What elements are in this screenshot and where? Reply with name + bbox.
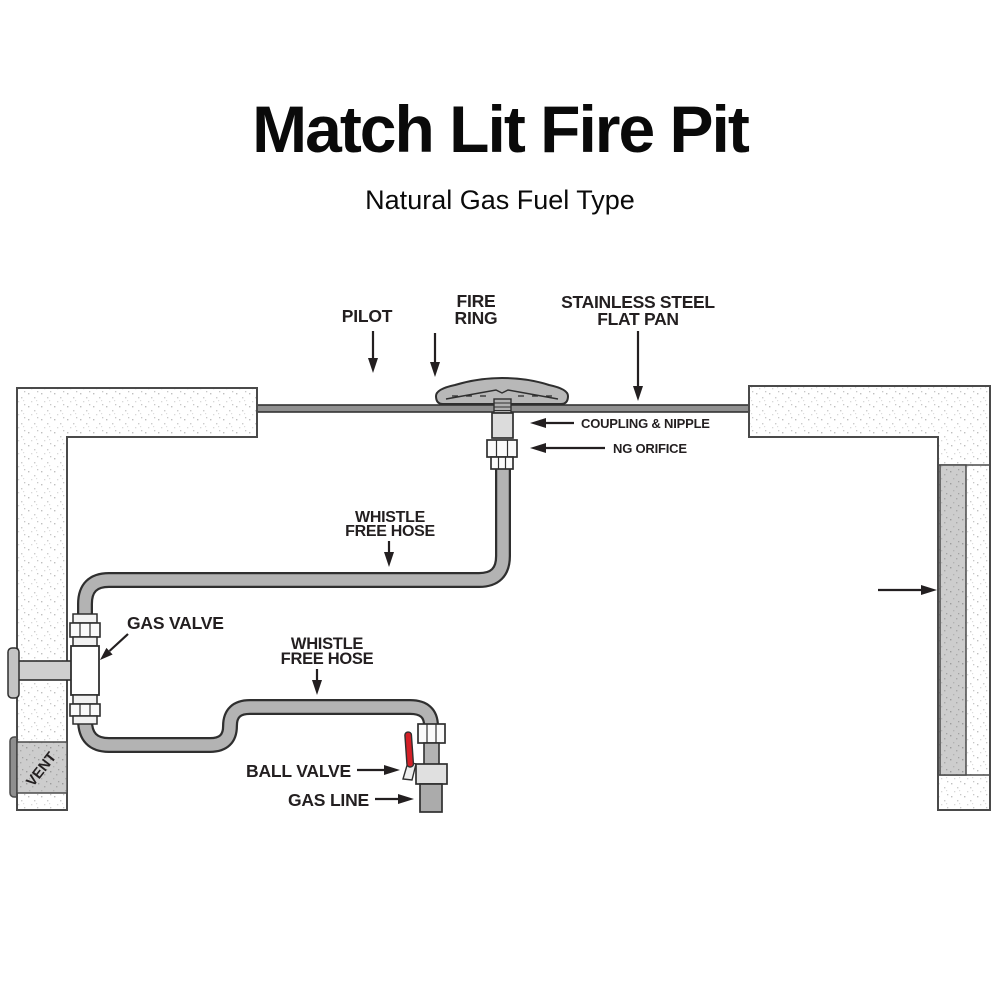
- right-wall-vent-strip: [940, 465, 966, 775]
- ball-valve-red-handle: [405, 732, 414, 767]
- label-fire-ring-line2: RING: [455, 308, 498, 328]
- arrow-flat-pan: [633, 331, 643, 401]
- arrow-ng-orifice: [530, 443, 605, 453]
- label-gas-line: GAS LINE: [288, 790, 369, 810]
- gas-valve: [70, 614, 100, 724]
- label-gas-valve: GAS VALVE: [127, 613, 224, 633]
- arrow-coupling-nipple: [530, 418, 574, 428]
- fire-pit-diagram: VENT: [0, 0, 1000, 1000]
- label-ng-orifice: NG ORIFICE: [613, 441, 687, 456]
- arrow-right-wall-vent: [878, 585, 937, 595]
- gas-line-pipe: [420, 784, 442, 812]
- gas-valve-flange: [8, 648, 19, 698]
- ng-orifice: [487, 440, 517, 469]
- hose-upper-fill: [85, 466, 503, 618]
- hose-upper-outline: [85, 466, 503, 618]
- label-ball-valve: BALL VALVE: [246, 761, 351, 781]
- label-coupling-nipple: COUPLING & NIPPLE: [581, 416, 710, 431]
- label-whistle-hose-lower-line2: FREE HOSE: [281, 650, 374, 668]
- arrow-whistle-hose-upper: [384, 541, 394, 567]
- arrow-fire-ring: [430, 333, 440, 377]
- gas-valve-body: [71, 646, 99, 695]
- ball-valve-pipe: [424, 743, 439, 765]
- coupling-and-nipple: [492, 413, 513, 438]
- label-flat-pan-line2: FLAT PAN: [597, 309, 679, 329]
- diagram-canvas: Match Lit Fire Pit Natural Gas Fuel Type: [0, 0, 1000, 1000]
- hose-lower-fill: [85, 707, 431, 745]
- arrow-ball-valve: [357, 765, 400, 775]
- arrow-whistle-hose-lower: [312, 669, 322, 695]
- ball-valve-body: [416, 764, 447, 784]
- arrow-gas-valve: [100, 634, 128, 660]
- label-whistle-hose-upper-line2: FREE HOSE: [345, 523, 435, 540]
- whistle-free-hose-lower: [85, 707, 431, 745]
- arrow-gas-line: [375, 794, 414, 804]
- arrow-pilot: [368, 331, 378, 373]
- ball-valve-coupling: [418, 724, 445, 743]
- whistle-free-hose-upper: [85, 466, 503, 618]
- gas-valve-stem: [12, 661, 72, 680]
- label-pilot: PILOT: [342, 306, 393, 326]
